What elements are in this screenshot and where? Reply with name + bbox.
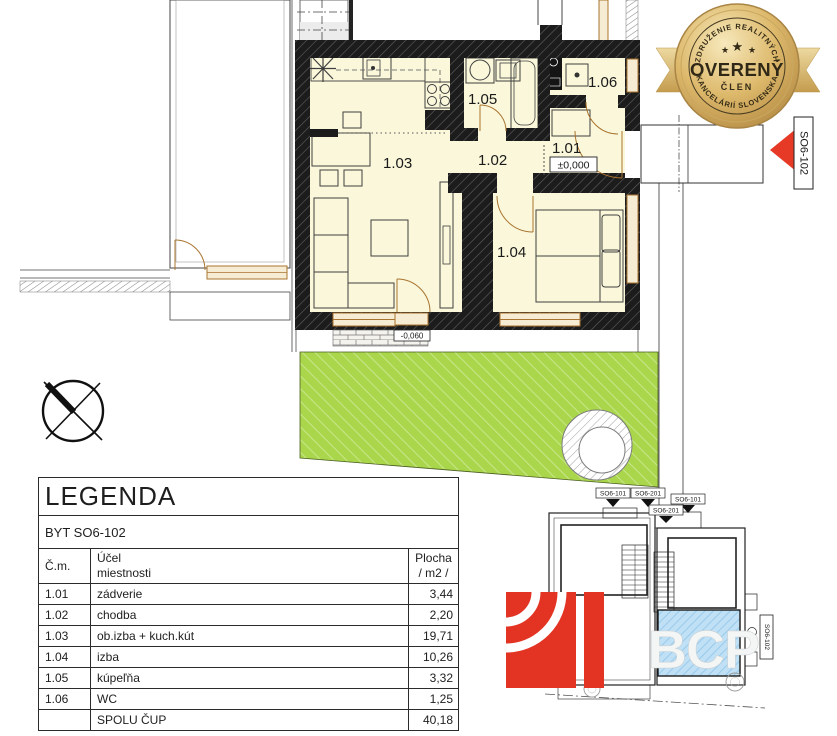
terrace-door-frame	[395, 313, 428, 325]
legend-row: 1.01 zádverie 3,44	[39, 584, 459, 605]
room-area: 2,20	[408, 605, 458, 626]
watermark-text: BCP	[648, 620, 759, 680]
total-spacer	[39, 710, 91, 731]
room-area: 10,26	[408, 647, 458, 668]
entrance-opening	[625, 131, 640, 178]
star-icon: ★	[748, 45, 756, 55]
window-wc	[627, 59, 638, 92]
badge-title: OVERENÝ	[690, 59, 784, 80]
room-name: zádverie	[91, 584, 409, 605]
room-label-1-01: 1.01	[552, 140, 581, 157]
extractor-fan-icon	[310, 55, 336, 82]
minimap-label: SO6-201	[635, 491, 661, 498]
total-label: SPOLU ČUP	[91, 710, 409, 731]
window-side	[627, 195, 638, 283]
minimap-label: SO6-201	[653, 508, 679, 515]
room-name: kúpeľňa	[91, 668, 409, 689]
room-number: 1.01	[39, 584, 91, 605]
legend-row: 1.02 chodba 2,20	[39, 605, 459, 626]
north-arrow-icon	[43, 381, 103, 441]
level-interior: ±0,000	[557, 160, 589, 172]
room-number: 1.05	[39, 668, 91, 689]
star-icon: ★	[732, 39, 744, 54]
minimap-label-right: SO6-102	[763, 624, 770, 650]
badge-subtitle: ČLEN	[721, 81, 754, 92]
room-label-1-06: 1.06	[588, 74, 617, 91]
room-area: 3,44	[408, 584, 458, 605]
tree-icon	[562, 410, 632, 480]
legend-total-row: SPOLU ČUP 40,18	[39, 710, 459, 731]
legend-row: 1.04 izba 10,26	[39, 647, 459, 668]
room-number: 1.02	[39, 605, 91, 626]
total-value: 40,18	[408, 710, 458, 731]
room-name: WC	[91, 689, 409, 710]
room-name: ob.izba + kuch.kút	[91, 626, 409, 647]
star-icon: ★	[721, 45, 729, 55]
room-area: 19,71	[408, 626, 458, 647]
col-header-area: Plocha / m2 /	[408, 549, 458, 584]
legend-row: 1.06 WC 1,25	[39, 689, 459, 710]
room-area: 1,25	[408, 689, 458, 710]
legend-row: 1.03 ob.izba + kuch.kút 19,71	[39, 626, 459, 647]
col-header-purpose: Účel miestnosti	[91, 549, 409, 584]
floorplan-page: 1.03 1.02 1.01 1.04 1.05 1.06 ±0,000 -0,…	[0, 0, 837, 736]
room-number: 1.06	[39, 689, 91, 710]
minimap-label: SO6-101	[600, 491, 626, 498]
legend-subtitle: BYT SO6-102	[39, 516, 459, 549]
room-label-1-03: 1.03	[383, 155, 412, 172]
room-name: izba	[91, 647, 409, 668]
minimap-label: SO6-101	[675, 497, 701, 504]
garden: -0,060	[300, 330, 658, 487]
level-terrace: -0,060	[401, 332, 424, 341]
unit-marker-label: SO6-102	[798, 131, 810, 175]
unit-marker: SO6-102	[794, 117, 813, 189]
verified-badge: ZDRUŽENIE REALITNÝCH ★ ★ ★ OVERENÝ ČLEN …	[656, 4, 820, 128]
room-number: 1.04	[39, 647, 91, 668]
room-label-1-04: 1.04	[497, 244, 526, 261]
room-label-1-02: 1.02	[478, 152, 507, 169]
legend-table: LEGENDA BYT SO6-102 Č.m. Účel miestnosti…	[38, 477, 459, 731]
legend-title: LEGENDA	[39, 478, 459, 516]
terrain-line	[545, 694, 765, 708]
col-header-number: Č.m.	[39, 549, 91, 584]
legend-row: 1.05 kúpeľňa 3,32	[39, 668, 459, 689]
room-label-1-05: 1.05	[468, 91, 497, 108]
room-number: 1.03	[39, 626, 91, 647]
room-name: chodba	[91, 605, 409, 626]
room-area: 3,32	[408, 668, 458, 689]
entrance-arrow	[770, 128, 797, 172]
